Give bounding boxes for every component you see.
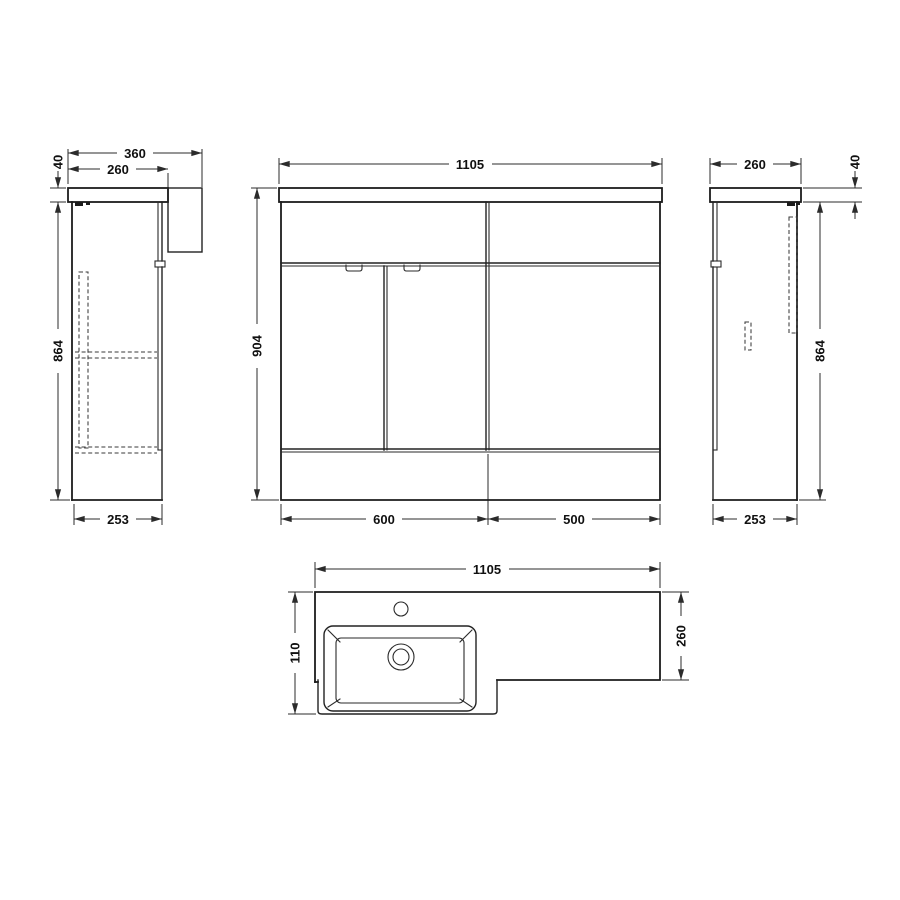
dim-plan-overall-width: 1105 <box>315 562 660 588</box>
front-view: 1105 904 600 500 <box>249 157 662 527</box>
dim-label-110: 110 <box>288 643 303 664</box>
dim-front-overall-width: 1105 <box>279 157 662 184</box>
handle-notch-profile <box>155 261 165 267</box>
dim-label-864: 864 <box>51 339 66 361</box>
fixing-rail-mark <box>86 202 90 205</box>
worktop-section-right <box>710 188 801 202</box>
dim-label-1105-plan: 1105 <box>473 562 501 577</box>
dim-right-worktop-depth: 260 <box>710 157 801 184</box>
dim-label-904: 904 <box>250 334 265 356</box>
hidden-service-void <box>789 217 797 333</box>
worktop-front-edge <box>279 188 662 202</box>
dim-right-worktop-thickness: 40 <box>803 155 863 219</box>
dim-left-worktop-depth: 260 <box>68 162 168 188</box>
dim-label-253: 253 <box>107 512 129 527</box>
plan-view: 1105 110 260 <box>287 562 689 714</box>
dim-label-1105: 1105 <box>456 157 484 172</box>
basin-corner-bevel <box>328 630 340 642</box>
worktop-plan-outline <box>315 592 660 682</box>
tap-hole <box>394 602 408 616</box>
waste-inner-ring <box>393 649 409 665</box>
waste-outer-ring <box>388 644 414 670</box>
dim-label-40-right: 40 <box>848 155 863 169</box>
dim-left-worktop-thickness: 40 <box>50 155 66 202</box>
dim-label-864-right: 864 <box>813 339 828 361</box>
basin-outer-rim <box>324 626 476 711</box>
dim-label-40: 40 <box>51 155 66 169</box>
dim-plan-basin-depth: 110 <box>287 592 316 714</box>
basin-corner-bevel <box>460 699 472 707</box>
dim-left-base-depth: 253 <box>74 504 162 527</box>
fixing-rail-mark <box>796 202 800 205</box>
handle-notch-profile <box>711 261 721 267</box>
vanity-unit-drawing: 360 260 40 864 253 <box>0 0 900 900</box>
basin-bowl-side-profile <box>168 188 202 252</box>
fixing-rail-mark <box>75 202 83 206</box>
dim-label-260-plan: 260 <box>674 625 689 647</box>
hidden-service-void <box>79 272 88 448</box>
dim-label-600: 600 <box>373 512 395 527</box>
dim-plan-worktop-depth: 260 <box>662 592 689 680</box>
dim-label-253-right: 253 <box>744 512 766 527</box>
dim-label-360: 360 <box>124 146 146 161</box>
basin-corner-bevel <box>328 699 340 707</box>
hidden-fixing-slot <box>745 322 751 350</box>
dim-label-260-right: 260 <box>744 157 766 172</box>
carcass-outline <box>281 202 660 500</box>
side-view-right: 260 40 864 253 <box>710 155 863 527</box>
basin-unit-projection-outline <box>318 680 497 714</box>
dim-front-unit-widths: 600 500 <box>281 454 660 527</box>
side-view-left: 360 260 40 864 253 <box>50 146 202 527</box>
technical-drawing-canvas: 360 260 40 864 253 <box>0 0 900 900</box>
dim-label-260: 260 <box>107 162 129 177</box>
worktop-section <box>68 188 168 202</box>
dim-front-overall-height: 904 <box>249 188 279 500</box>
dim-left-carcass-height: 864 <box>50 202 70 500</box>
fixing-rail-mark <box>787 202 795 206</box>
dim-right-base-depth: 253 <box>713 504 797 527</box>
dim-label-500: 500 <box>563 512 585 527</box>
basin-corner-bevel <box>460 630 472 642</box>
dim-right-carcass-height: 864 <box>799 202 828 500</box>
